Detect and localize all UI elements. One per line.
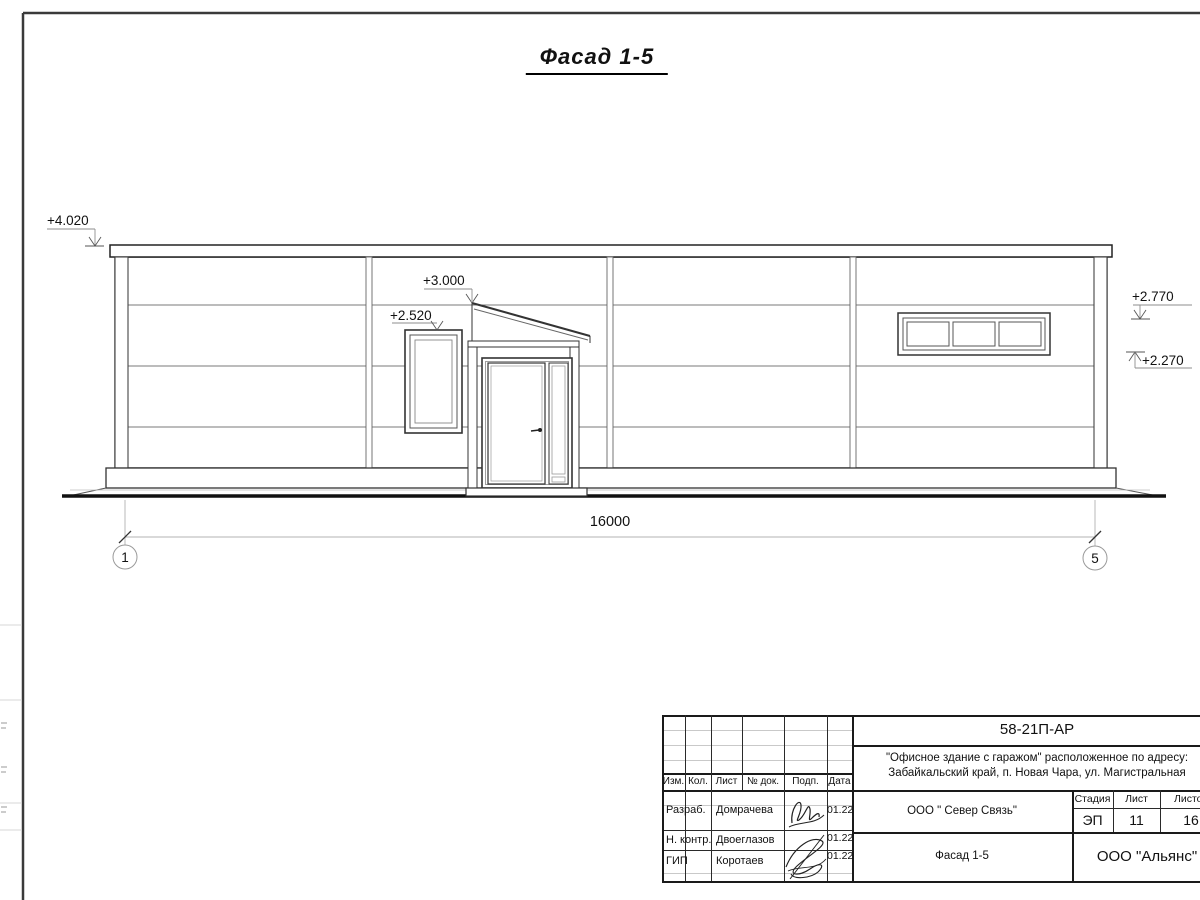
axis-label-right: 5 <box>1091 551 1099 566</box>
grid-axis-5: 5 <box>1083 546 1107 570</box>
tb-line <box>852 745 1200 747</box>
tb-line <box>662 745 852 746</box>
tb-doc-number: 58-21П-АР <box>852 715 1200 745</box>
tb-line <box>662 730 852 731</box>
tb-stage-label: Стадия <box>1072 790 1113 808</box>
level-label-parapet: +4.020 <box>47 213 89 228</box>
panel-joint <box>850 257 856 468</box>
level-mark-4020 <box>47 229 104 246</box>
tb-col-data: Дата <box>827 773 852 790</box>
tb-stage-value: ЭП <box>1072 808 1113 832</box>
grid-axis-1: 1 <box>113 545 137 569</box>
tb-sheet-number: 11 <box>1113 808 1160 832</box>
tb-line <box>662 881 1200 883</box>
signature-icon <box>782 831 830 881</box>
window-pane <box>415 340 452 423</box>
tb-sheets-label: Листов <box>1160 790 1200 808</box>
tb-sheet-label: Лист <box>1113 790 1160 808</box>
tb-project-line1: "Офисное здание с гаражом" расположенное… <box>852 751 1200 765</box>
tb-role: Разраб. <box>666 790 712 830</box>
tb-role: ГИП <box>666 851 712 871</box>
panel-joint <box>366 257 372 468</box>
tb-role: Н. контр. <box>666 830 712 850</box>
margin-stamp-artifacts <box>0 625 22 830</box>
corner-pilaster-left <box>115 257 128 468</box>
tb-date: 01.22 <box>827 828 852 848</box>
corner-pilaster-right <box>1094 257 1107 468</box>
tb-organization: ООО "Альянс" <box>1072 832 1200 881</box>
portal-lintel <box>468 341 579 347</box>
tb-project-line2: Забайкальский край, п. Новая Чара, ул. М… <box>852 766 1200 780</box>
ribbon-window <box>898 313 1050 355</box>
title-block: Изм. Кол. Лист № док. Подп. Дата Разраб.… <box>662 715 1200 883</box>
tb-col-podp: Подп. <box>784 773 827 790</box>
drawing-sheet: { "sheet": { "title": "Фасад 1-5" }, "fa… <box>0 0 1200 900</box>
door-handle-knob <box>538 428 542 432</box>
tb-drawing-title: Фасад 1-5 <box>852 832 1072 881</box>
tb-sheets-total: 16 <box>1160 808 1200 832</box>
tb-name: Домрачева <box>716 790 784 830</box>
level-label-entry-window: +2.520 <box>390 308 432 323</box>
plinth <box>106 468 1116 488</box>
tb-col-izm: Изм. <box>662 773 685 790</box>
dimension-label: 16000 <box>590 514 630 530</box>
portal-post-left <box>468 347 477 488</box>
tb-name: Двоеглазов <box>716 830 784 850</box>
level-label-right-lower: +2.270 <box>1142 353 1184 368</box>
axis-label-left: 1 <box>121 550 129 565</box>
entry-window <box>405 330 462 433</box>
ribbon-window-pane <box>999 322 1041 346</box>
ribbon-window-pane <box>953 322 995 346</box>
level-label-canopy: +3.000 <box>423 273 465 288</box>
dimension-16000: 16000 <box>119 500 1101 546</box>
tb-date: 01.22 <box>827 846 852 866</box>
door-leaf <box>488 363 545 484</box>
panel-joint <box>607 257 613 468</box>
tb-col-kol: Кол. <box>685 773 711 790</box>
ribbon-window-pane <box>907 322 949 346</box>
signature-icon <box>786 793 826 833</box>
tb-date: 01.22 <box>827 790 852 830</box>
door-handle <box>531 430 539 431</box>
tb-col-list: Лист <box>711 773 742 790</box>
tb-line <box>662 715 664 883</box>
tb-col-doc: № док. <box>742 773 784 790</box>
parapet-cap <box>110 245 1112 257</box>
tb-contractor: ООО " Север Связь" <box>852 790 1072 832</box>
entrance-step <box>466 488 587 496</box>
tb-line <box>662 760 852 761</box>
tb-name: Коротаев <box>716 851 784 871</box>
level-label-right-upper: +2.770 <box>1132 289 1174 304</box>
sheet-title: Фасад 1-5 <box>526 44 668 75</box>
level-mark-2770 <box>1131 305 1192 319</box>
